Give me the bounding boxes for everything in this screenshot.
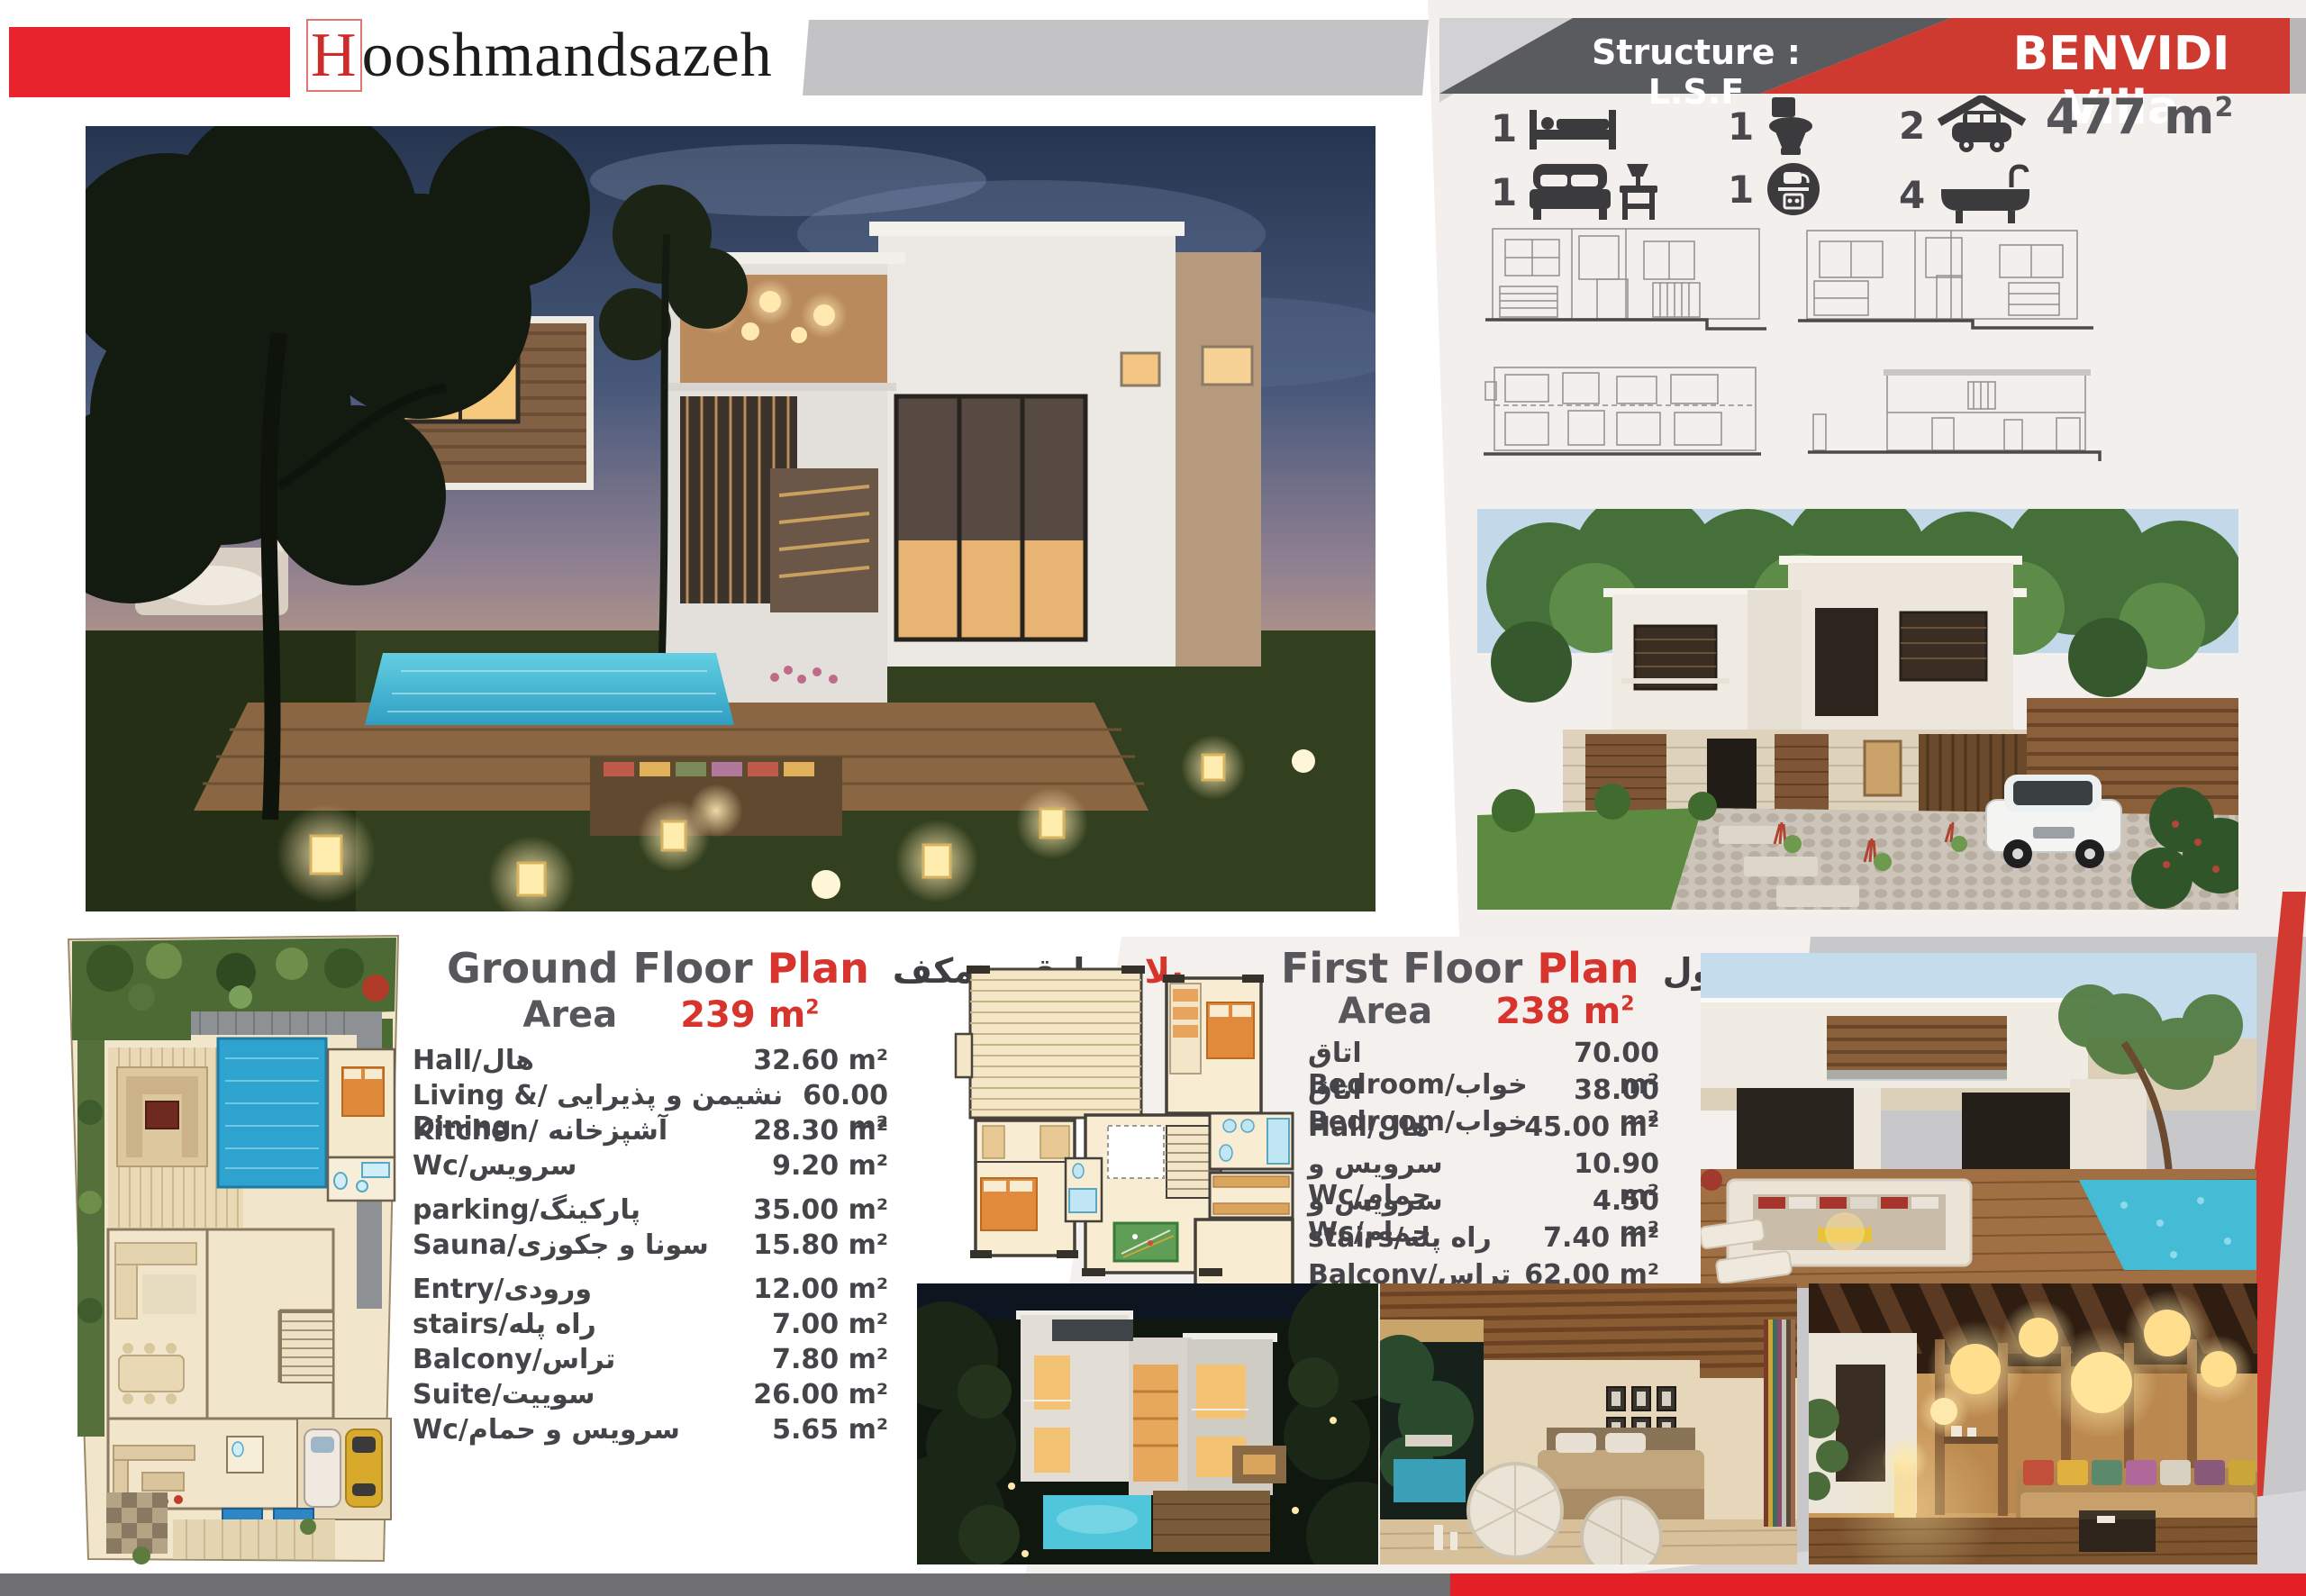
- table-row: سرویس و حمام/Wc5.65 m²: [413, 1414, 888, 1449]
- table-row: ورودی/Entry12.00 m²: [413, 1274, 888, 1309]
- ground-floor-table: هال/Hall32.60 m² نشیمن و پذیرایی /Living…: [413, 1045, 888, 1449]
- elevation-drawing-rear: [1793, 223, 2099, 342]
- table-row: نشیمن و پذیرایی /Living & Dining60.00 m²: [413, 1080, 888, 1115]
- table-row: راه پله/stairs7.00 m²: [413, 1309, 888, 1344]
- single-bed-count: 1: [1491, 106, 1517, 150]
- elevation-drawing-front: [1482, 223, 1770, 342]
- elevation-drawing-section: [1806, 358, 2103, 468]
- table-row: سرویس/Wc9.20 m²: [413, 1150, 888, 1185]
- double-bed-count: 1: [1491, 170, 1517, 214]
- ground-area-value: 239 m2: [680, 994, 819, 1036]
- night-aerial-photo: [917, 1283, 1378, 1564]
- ground-area-label: Area: [522, 994, 617, 1036]
- elevation-drawing-side: [1482, 358, 1770, 468]
- table-row: اتاق خواب/Bedroom38.00 m²: [1308, 1075, 1659, 1111]
- table-row: تراس/Balcony7.80 m²: [413, 1344, 888, 1379]
- logo-red-block: [9, 27, 290, 97]
- first-title-en: First Floor Plan: [1281, 944, 1639, 993]
- bedroom-photo: [1380, 1283, 1797, 1564]
- feature-bathtub: 4: [1899, 164, 2033, 225]
- kitchen-icon: [1766, 162, 1820, 216]
- feature-garage: 2: [1899, 95, 2026, 155]
- table-row: هال/Hall32.60 m²: [413, 1045, 888, 1080]
- bathtub-icon: [1938, 164, 2033, 225]
- logo-rest: ooshmandsazeh: [362, 21, 773, 90]
- first-floor-table: اتاق خواب/Bedroom70.00 m² اتاق خواب/Bedr…: [1308, 1038, 1659, 1296]
- toilet-count: 1: [1728, 104, 1754, 149]
- front-villa-render: [1477, 509, 2238, 910]
- garage-car-icon: [1938, 95, 2026, 155]
- bathtub-count: 4: [1899, 173, 1925, 217]
- company-logo: Hooshmandsazeh: [306, 20, 773, 92]
- table-row: سوییت/Suite26.00 m²: [413, 1379, 888, 1414]
- main-villa-render: [86, 126, 1375, 911]
- kitchen-count: 1: [1728, 168, 1754, 212]
- table-row: آشپزخانه /Kitchen28.30 m²: [413, 1115, 888, 1150]
- feature-single-bed: 1: [1491, 101, 1616, 155]
- first-area-label: Area: [1338, 991, 1432, 1032]
- total-area: 477 m2: [2009, 88, 2270, 145]
- feature-double-bed: 1: [1491, 162, 1657, 222]
- terrace-lounge-photo: [1809, 1283, 2257, 1564]
- table-row: اتاق خواب/Bedroom70.00 m²: [1308, 1038, 1659, 1075]
- ground-title-en: Ground Floor Plan: [447, 944, 869, 993]
- table-row: سونا و جکوزی/Sauna15.80 m²: [413, 1229, 888, 1265]
- pool-terrace-render: [1701, 953, 2256, 1288]
- first-floor-plan-drawing: [950, 953, 1311, 1313]
- table-row: راه پله/stairs7.40 m²: [1308, 1222, 1659, 1259]
- single-bed-icon: [1530, 101, 1616, 155]
- ground-floor-plan-drawing: [56, 932, 434, 1565]
- table-row: سرویس و حمام/Wc4.50 m²: [1308, 1185, 1659, 1222]
- double-bed-icon: [1530, 162, 1657, 222]
- ground-floor-area: Area 239 m2: [455, 994, 887, 1036]
- feature-kitchen: 1: [1728, 162, 1820, 216]
- logo-initial: H: [306, 19, 362, 92]
- toilet-icon: [1766, 97, 1815, 155]
- table-row: پارکینگ/parking35.00 m²: [413, 1194, 888, 1229]
- villa-poster: Hooshmandsazeh Structure : L.S.F BENVIDI…: [0, 0, 2306, 1596]
- table-row: سرویس و حمام/Wc10.90 m²: [1308, 1148, 1659, 1185]
- garage-car-count: 2: [1899, 104, 1925, 148]
- feature-toilet: 1: [1728, 97, 1815, 155]
- footer-bar-gray: [0, 1573, 1450, 1596]
- first-area-value: 238 m2: [1495, 991, 1634, 1032]
- footer-bar-red: [1450, 1573, 2306, 1596]
- first-floor-area: Area 238 m2: [1315, 991, 1657, 1032]
- table-row: هال/Hall45.00 m²: [1308, 1111, 1659, 1148]
